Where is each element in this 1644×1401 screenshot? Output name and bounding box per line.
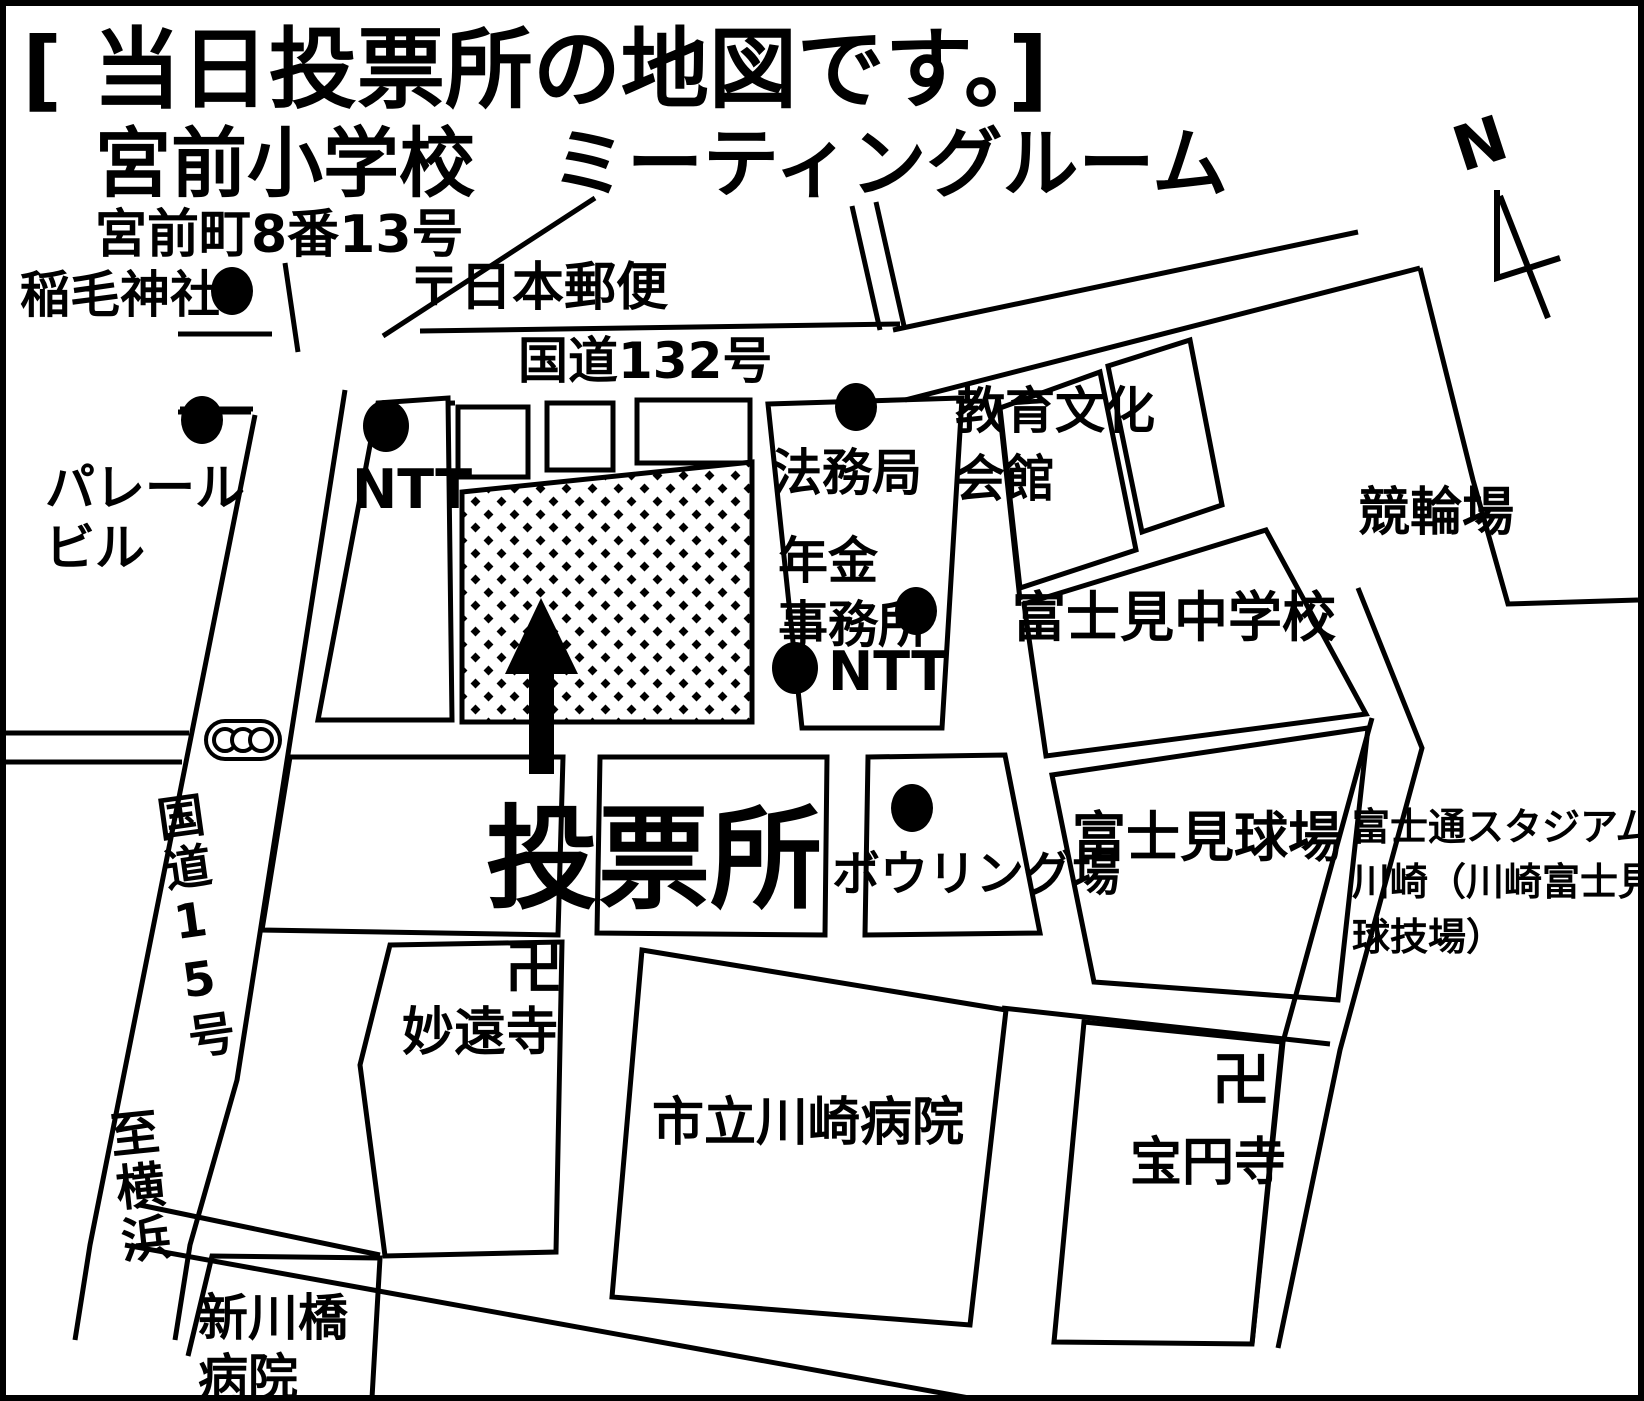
bowling-label: ボウリング場: [832, 846, 1120, 902]
bowling-dot: [891, 784, 933, 832]
north-road-left: [852, 206, 880, 330]
education-hall-label-line2: 会館: [955, 450, 1055, 508]
polling-place-map: N [ 当日投票所の地図です。] 宮前小学校 ミーティングルーム 宮前町8番13…: [0, 0, 1644, 1401]
legal-affairs-label: 法務局: [772, 444, 922, 502]
road-network: [6, 198, 1638, 1400]
polling-school-block: [462, 462, 752, 722]
compass-n-label: N: [1444, 101, 1516, 186]
bottom-road-top-west: [140, 1205, 380, 1255]
hoenji-temple-icon: 卍: [1212, 1046, 1270, 1114]
bowling-block: [865, 755, 1040, 935]
route132-label: 国道132号: [518, 332, 772, 390]
building-2: [547, 403, 613, 470]
arrow-shaft: [529, 662, 554, 774]
education-hall-label-line1: 教育文化: [955, 382, 1155, 440]
myoenji-temple-icon: 卍: [505, 934, 563, 1002]
compass: N: [1444, 101, 1560, 318]
map-subtitle: 宮前小学校 ミーティングルーム: [95, 119, 1228, 208]
fujitsu-stadium-label-line2: 川崎（川崎富士見: [1352, 860, 1644, 904]
hoenji-label: 宝円寺: [1130, 1133, 1286, 1193]
route132-top-edge: [420, 324, 900, 331]
building-3: [637, 400, 750, 463]
keirin-boundary: [1420, 268, 1638, 604]
traffic-light-icon: [206, 721, 280, 759]
legal-affairs-dot: [835, 383, 877, 431]
kawasaki-hospital-label: 市立川崎病院: [652, 1093, 964, 1153]
address-label: 宮前町8番13号: [95, 205, 464, 265]
map-title: [ 当日投票所の地図です。]: [22, 18, 1048, 121]
fujimi-junior-high-label: 富士見中学校: [1012, 586, 1336, 649]
map-canvas: N [ 当日投票所の地図です。] 宮前小学校 ミーティングルーム 宮前町8番13…: [0, 0, 1644, 1401]
fujitsu-stadium-label-line1: 富士通スタジアム: [1352, 805, 1644, 849]
ntt-east-label: NTT: [828, 640, 948, 703]
ntt-west-label: NTT: [352, 458, 472, 521]
myoenji-label: 妙遠寺: [402, 1003, 558, 1063]
pension-label-line1: 年金: [778, 532, 879, 590]
compass-needle-icon: [1497, 190, 1560, 318]
japan-post-label: 〒日本郵便: [408, 258, 669, 318]
shinkawabashi-label-line2: 病院: [198, 1349, 298, 1401]
shinkawabashi-label-line1: 新川橋: [198, 1289, 348, 1347]
parele-label-line1: パレール: [45, 459, 245, 517]
road-north-arm-left: [285, 263, 298, 352]
fujitsu-stadium-label-line3: 球技場）: [1352, 915, 1504, 959]
parele-label-line2: ビル: [45, 519, 145, 577]
north-road-right: [876, 202, 904, 326]
keirin-label: 競輪場: [1358, 483, 1514, 543]
parele-dot: [181, 396, 223, 444]
polling-place-label: 投票所: [486, 795, 822, 925]
diagonal-road-upper: [893, 232, 1358, 330]
ntt-west-dot: [363, 400, 409, 452]
traffic-light-lamp-3: [250, 729, 272, 751]
inage-shrine-label: 稲毛神社: [20, 266, 220, 324]
